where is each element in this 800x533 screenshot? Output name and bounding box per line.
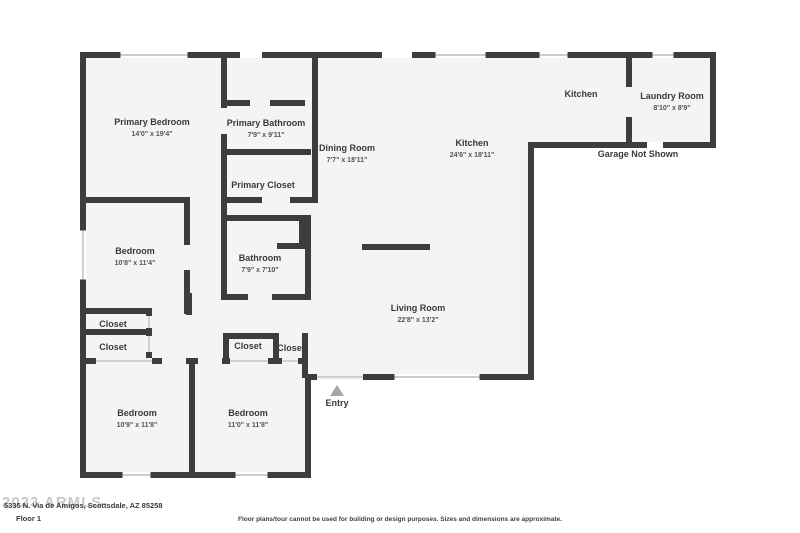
room-dims-bedroom-bottom-left: 10'9" x 11'8" xyxy=(117,422,158,429)
room-dims-kitchen: 24'6" x 18'11" xyxy=(450,152,495,159)
room-dims-dining-room: 7'7" x 18'11" xyxy=(327,157,368,164)
entry-label: Entry xyxy=(325,398,348,408)
room-label-kitchen-area: Kitchen xyxy=(564,89,597,99)
room-dims-living-room: 22'8" x 13'2" xyxy=(397,317,438,324)
room-label-bedroom-bottom-left: Bedroom xyxy=(117,408,157,418)
room-dims-bedroom-left: 10'8" x 11'4" xyxy=(115,260,156,267)
room-dims-laundry-room: 8'10" x 8'9" xyxy=(653,105,690,112)
floor-area xyxy=(80,52,716,478)
entry-arrow-icon xyxy=(330,385,344,396)
room-label-bedroom-bottom-middle: Bedroom xyxy=(228,408,268,418)
entry-marker: Entry xyxy=(325,385,348,408)
room-label-living-room: Living Room xyxy=(391,303,446,313)
room-dims-primary-bathroom: 7'9" x 9'11" xyxy=(248,132,285,139)
room-label-dining-room: Dining Room xyxy=(319,143,375,153)
room-label-laundry-room: Laundry Room xyxy=(640,91,704,101)
floorplan-page: Primary Bedroom14'0" x 19'4"Primary Bath… xyxy=(0,0,800,533)
kitchen-island xyxy=(362,244,430,250)
room-label-garage-note: Garage Not Shown xyxy=(598,149,679,159)
room-dims-bedroom-bottom-middle: 11'0" x 11'8" xyxy=(228,422,268,429)
room-label-kitchen: Kitchen xyxy=(455,138,488,148)
room-label-closet-2: Closet xyxy=(99,342,127,352)
room-label-primary-bathroom: Primary Bathroom xyxy=(227,118,306,128)
room-label-closet-1: Closet xyxy=(99,319,127,329)
disclaimer-text: Floor plans/tour cannot be used for buil… xyxy=(0,516,800,523)
floorplan-svg: Primary Bedroom14'0" x 19'4"Primary Bath… xyxy=(0,0,800,533)
room-label-primary-bedroom: Primary Bedroom xyxy=(114,117,190,127)
room-dims-bathroom: 7'9" x 7'10" xyxy=(241,267,278,274)
room-label-primary-closet: Primary Closet xyxy=(231,180,295,190)
room-label-closet-3: Closet xyxy=(234,341,262,351)
room-label-closet-4: Closet xyxy=(277,343,305,353)
room-dims-primary-bedroom: 14'0" x 19'4" xyxy=(131,131,172,138)
property-address: 5335 N. Via de Amigos, Scottsdale, AZ 85… xyxy=(4,501,163,510)
room-label-bathroom: Bathroom xyxy=(239,253,282,263)
room-label-bedroom-left: Bedroom xyxy=(115,246,155,256)
